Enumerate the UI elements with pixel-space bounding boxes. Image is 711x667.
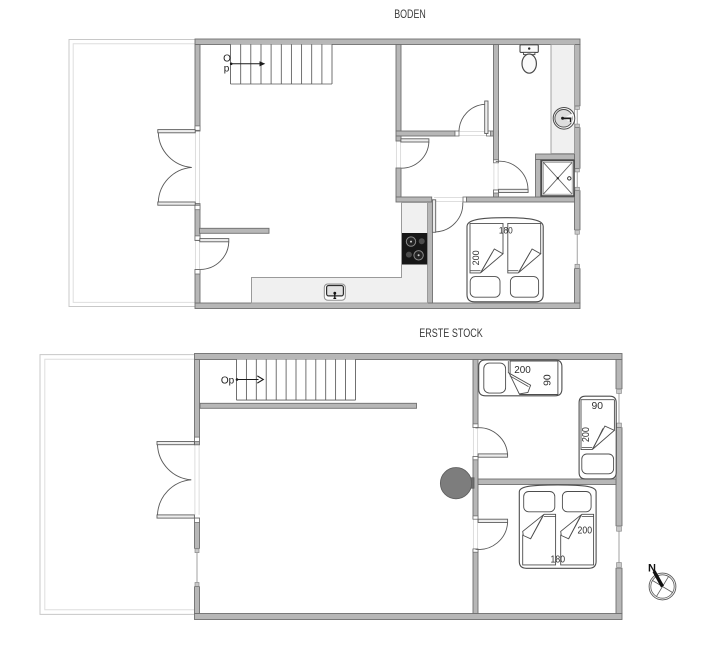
svg-text:200: 200 [514,365,531,376]
svg-text:180: 180 [551,554,566,565]
svg-text:N: N [648,563,656,575]
svg-text:180: 180 [499,226,513,237]
svg-text:200: 200 [578,526,593,537]
svg-text:BODEN: BODEN [394,9,426,21]
svg-text:200: 200 [471,250,482,265]
svg-text:Op: Op [221,375,235,386]
svg-text:90: 90 [592,401,604,412]
svg-text:ERSTE STOCK: ERSTE STOCK [419,328,483,340]
svg-text:200: 200 [581,427,592,442]
svg-text:p: p [224,64,230,75]
svg-text:90: 90 [543,374,554,386]
